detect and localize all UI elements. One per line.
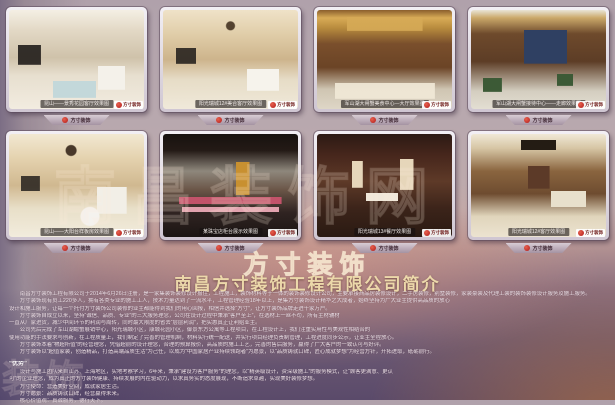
core-values-line: 核心价值观：真诚服务，德行天下。 — [9, 398, 606, 405]
intro-line: 一直从厂家进货，减少中间环节的利润与周转，同时最大限度的省去“层层利润”，把实惠… — [9, 320, 606, 327]
interior-render-image — [163, 10, 298, 109]
mission-line: 方寸使命：营造美好空间，成就家居生活。 — [9, 384, 606, 391]
logo-icon — [116, 230, 122, 236]
photo-jewelry-store: 某珠宝店柜台展示效果图 方寸装饰 — [160, 131, 301, 240]
advantage-heading: “优势” — [9, 361, 606, 368]
promo-poster: { "logo": { "name": "方寸装饰" }, "header": … — [0, 0, 615, 400]
logo-icon — [62, 117, 68, 123]
logo-badge: 方寸装饰 — [114, 229, 143, 237]
photo-living-room-2: 阳光瑞城12#美合客厅效果图 方寸装饰 — [160, 7, 301, 112]
photo-caption: 阳光瑞城13#餐厅效果图 — [354, 228, 415, 236]
intro-line: 方寸装饰现有员工220多人，拥有各类专业的施工工人，技术力量达到了一流水平，工程… — [9, 298, 606, 305]
logo-badge: 方寸装饰 — [422, 101, 451, 109]
logo-badge: 方寸装饰 — [268, 229, 297, 237]
logo-badge-label: 方寸装饰 — [585, 102, 603, 108]
photo-restaurant-corridor: 军山湖大闸蟹接待中心——走廊效果图 方寸装饰 — [468, 7, 609, 112]
intro-line: 南昌方寸装饰工程有限公司于2014年6月26日注册，是一家集装饰装修设计报住，工… — [9, 291, 606, 298]
brand-ribbon: 方寸装饰 — [352, 115, 418, 125]
logo-icon — [370, 117, 376, 123]
advantage-line: 可”的企业理念，成为真正的方寸装饰健康、持续发展的内在驱动力，以求真务实的态度展… — [9, 376, 606, 383]
advantage-line: 设计与施工团队来自江苏、上海地区，实地考察学习，6年来，秉承“建设为客户服务”的… — [9, 369, 606, 376]
logo-badge-label: 方寸装饰 — [277, 230, 295, 236]
logo-icon — [116, 102, 122, 108]
brand-ribbon-label: 方寸装饰 — [70, 117, 90, 124]
logo-badge: 方寸装饰 — [422, 229, 451, 237]
logo-icon — [270, 102, 276, 108]
logo-badge-label: 方寸装饰 — [277, 102, 295, 108]
logo-badge: 方寸装饰 — [576, 229, 605, 237]
logo-badge: 方寸装饰 — [576, 101, 605, 109]
intro-line: 设计和施工服务，让每一个托付方寸装饰公司装修的业主都能得到我们的用心回报，相信并… — [9, 306, 606, 313]
brand-ribbon-label: 方寸装饰 — [224, 117, 244, 124]
intro-line: 使用功能的手法要求与创新，在工程质量上，我们制定了完善的管理机制，材料实行统一配… — [9, 335, 606, 342]
brand-ribbon-label: 方寸装饰 — [378, 117, 398, 124]
brand-ribbon: 方寸装饰 — [44, 115, 110, 125]
logo-icon — [216, 117, 222, 123]
photo-restaurant-hall: 军山湖大闸蟹美食中心—大厅效果图 方寸装饰 — [314, 7, 455, 112]
logo-badge: 方寸装饰 — [114, 101, 143, 109]
logo-badge-label: 方寸装饰 — [431, 230, 449, 236]
brand-ribbon: 方寸装饰 — [506, 115, 572, 125]
interior-render-image — [471, 134, 606, 237]
logo-badge-label: 方寸装饰 — [431, 102, 449, 108]
brand-ribbon: 方寸装饰 — [198, 115, 264, 125]
interior-render-image — [163, 134, 298, 237]
vision-line: 方寸愿景：品质铸就口碑，经营赢得未来。 — [9, 391, 606, 398]
photo-caption: 军山湖大闸蟹美食中心—大厅效果图 — [340, 100, 428, 108]
photo-caption: 军山湖大闸蟹接待中心——走廊效果图 — [492, 100, 585, 108]
photo-living-room-3: 昆山——大阳台样板房效果图 方寸装饰 — [6, 131, 147, 240]
photo-dining-room: 阳光瑞城13#餐厅效果图 方寸装饰 — [314, 131, 455, 240]
logo-badge-label: 方寸装饰 — [123, 230, 141, 236]
interior-render-image — [317, 134, 452, 237]
intro-line: 公司先后完成了军山湖螃蟹展销中心，阳光瑞城小区，康城花园小区，御景东方公寓等工程… — [9, 327, 606, 334]
intro-line: 方寸装饰本着“物超所值”的经营理念，凭借超前的设计理念，合理的预算报价，高品质的… — [9, 342, 606, 349]
photo-caption: 阳光瑞城12#客厅效果图 — [508, 228, 569, 236]
intro-line: 方寸装饰以“超值家装，创造精品，打造高端品质生活”为己任，以成为“中国家居产业持… — [9, 349, 606, 356]
photo-caption: 昆山——大阳台样板房效果图 — [40, 228, 113, 236]
photo-row-top: 昆山——景秀花园客厅效果图 方寸装饰 阳光瑞城12#美合客厅效果图 方寸装饰 军… — [6, 7, 609, 112]
logo-badge-label: 方寸装饰 — [123, 102, 141, 108]
logo-icon — [578, 230, 584, 236]
interior-render-image — [471, 10, 606, 109]
interior-render-image — [317, 10, 452, 109]
brand-ribbon-label: 方寸装饰 — [532, 117, 552, 124]
photo-caption: 阳光瑞城12#美合客厅效果图 — [195, 100, 266, 108]
logo-icon — [524, 117, 530, 123]
interior-render-image — [9, 134, 144, 237]
logo-icon — [424, 230, 430, 236]
photo-caption: 某珠宝店柜台展示效果图 — [199, 228, 262, 236]
logo-icon — [424, 102, 430, 108]
company-introduction: 南昌方寸装饰工程有限公司于2014年6月26日注册，是一家集装饰装修设计报住，工… — [9, 291, 606, 405]
logo-icon — [270, 230, 276, 236]
logo-badge-label: 方寸装饰 — [585, 230, 603, 236]
intro-line: 方寸装饰自成立以来，坚持“诚信、品质、专业”的三大服务理念，公司在设计过程中秉承… — [9, 313, 606, 320]
logo-icon — [578, 102, 584, 108]
photo-chinese-living-room: 阳光瑞城12#客厅效果图 方寸装饰 — [468, 131, 609, 240]
photo-living-room-1: 昆山——景秀花园客厅效果图 方寸装饰 — [6, 7, 147, 112]
banner-row-top: 方寸装饰 方寸装饰 方寸装饰 方寸装饰 — [6, 115, 609, 125]
photo-row-bottom: 昆山——大阳台样板房效果图 方寸装饰 某珠宝店柜台展示效果图 方寸装饰 阳光瑞城… — [6, 131, 609, 240]
interior-render-image — [9, 10, 144, 109]
photo-caption: 昆山——景秀花园客厅效果图 — [40, 100, 113, 108]
logo-badge: 方寸装饰 — [268, 101, 297, 109]
